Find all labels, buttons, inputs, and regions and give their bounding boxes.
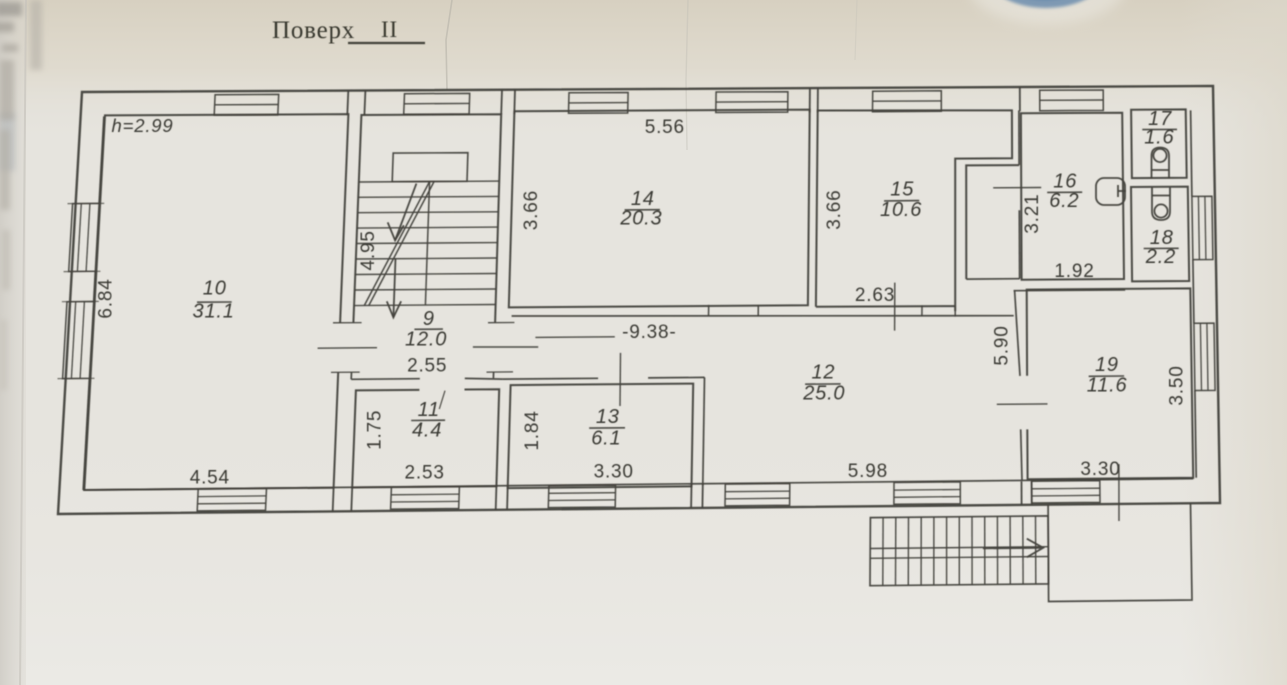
svg-text:12.0: 12.0 <box>405 328 447 350</box>
svg-text:6.1: 6.1 <box>591 427 621 449</box>
svg-text:4.4: 4.4 <box>412 420 442 442</box>
svg-text:10.6: 10.6 <box>880 199 922 221</box>
svg-text:3.30: 3.30 <box>1080 459 1120 480</box>
svg-text:2.53: 2.53 <box>405 463 445 484</box>
svg-text:-9.38-: -9.38- <box>622 322 676 343</box>
svg-text:10: 10 <box>203 278 227 300</box>
svg-text:5.56: 5.56 <box>645 117 685 138</box>
svg-text:6.84: 6.84 <box>96 278 117 318</box>
svg-text:11.6: 11.6 <box>1087 374 1128 396</box>
svg-text:1.92: 1.92 <box>1054 261 1094 282</box>
svg-text:11: 11 <box>418 399 440 421</box>
svg-text:16: 16 <box>1053 170 1077 192</box>
svg-text:19: 19 <box>1095 354 1119 376</box>
svg-text:3.66: 3.66 <box>824 190 845 230</box>
svg-text:h=2.99: h=2.99 <box>112 115 174 136</box>
svg-text:6.2: 6.2 <box>1049 190 1079 212</box>
svg-text:9: 9 <box>423 308 435 330</box>
svg-text:25.0: 25.0 <box>802 383 845 405</box>
svg-text:20.3: 20.3 <box>619 208 662 230</box>
svg-text:1.75: 1.75 <box>364 410 385 450</box>
svg-text:5.98: 5.98 <box>848 461 888 482</box>
svg-text:12: 12 <box>811 362 835 384</box>
svg-text:4.95: 4.95 <box>358 230 379 270</box>
svg-text:14: 14 <box>631 188 655 210</box>
svg-text:Поверх: Поверх <box>272 17 355 44</box>
svg-text:15: 15 <box>890 178 914 200</box>
svg-text:2.63: 2.63 <box>855 285 895 306</box>
svg-text:31.1: 31.1 <box>193 301 235 323</box>
svg-text:13: 13 <box>596 406 620 428</box>
svg-text:1.6: 1.6 <box>1144 127 1174 149</box>
svg-text:3.50: 3.50 <box>1167 365 1188 405</box>
svg-text:4.54: 4.54 <box>190 468 230 489</box>
svg-text:3.66: 3.66 <box>521 190 542 230</box>
svg-text:1.84: 1.84 <box>522 410 543 450</box>
svg-text:5.90: 5.90 <box>992 325 1013 365</box>
svg-text:3.21: 3.21 <box>1022 194 1043 234</box>
svg-text:3.30: 3.30 <box>594 462 634 483</box>
svg-text:2.55: 2.55 <box>407 356 447 377</box>
svg-text:2.2: 2.2 <box>1145 246 1176 268</box>
svg-text:II: II <box>381 17 398 42</box>
